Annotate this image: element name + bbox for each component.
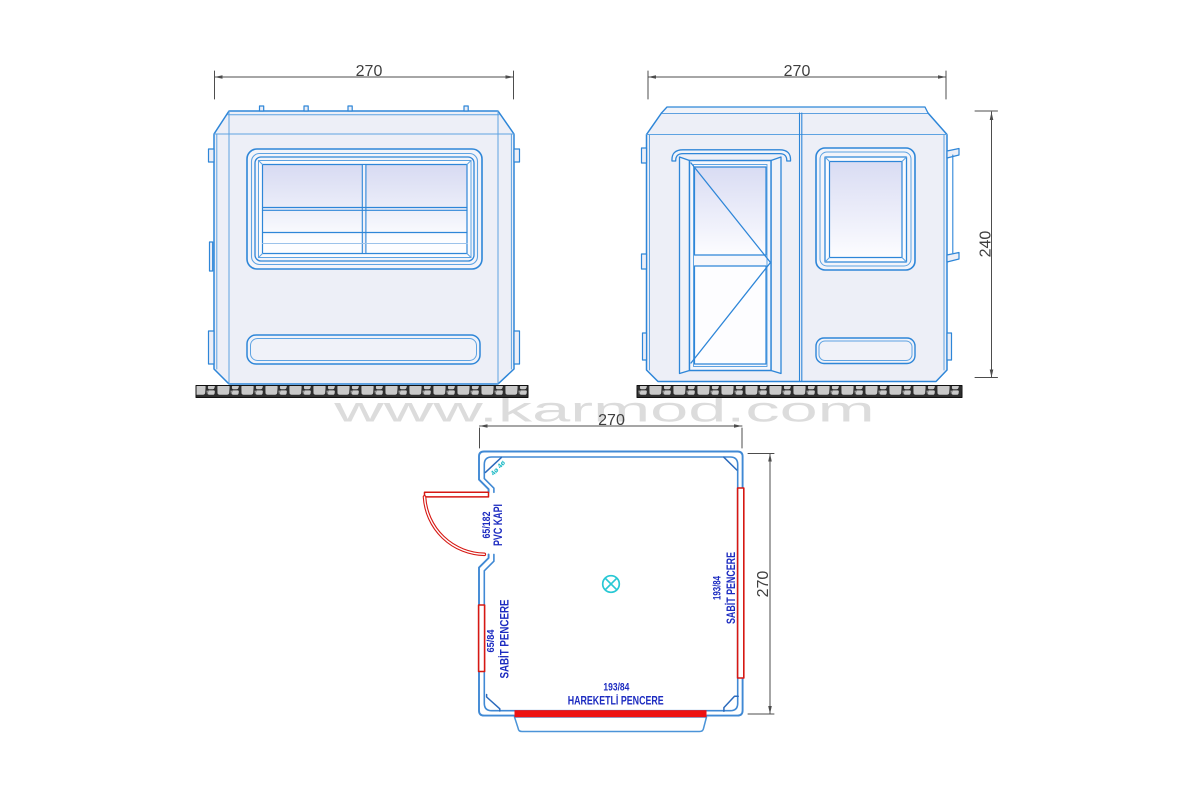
svg-text:65/182: 65/182 [481, 512, 493, 539]
svg-text:270: 270 [784, 63, 811, 80]
svg-text:270: 270 [598, 412, 625, 429]
svg-text:270: 270 [755, 571, 772, 598]
svg-text:193/84: 193/84 [711, 575, 723, 600]
svg-text:SABİT PENCERE: SABİT PENCERE [497, 600, 512, 679]
svg-text:270: 270 [356, 63, 383, 80]
svg-text:PVC KAPI: PVC KAPI [493, 504, 505, 546]
svg-text:SABİT PENCERE: SABİT PENCERE [723, 552, 738, 624]
svg-text:240: 240 [978, 231, 995, 258]
svg-text:193/84: 193/84 [603, 682, 630, 694]
svg-text:HAREKETLİ PENCERE: HAREKETLİ PENCERE [568, 694, 664, 708]
svg-text:65/84: 65/84 [485, 629, 497, 652]
